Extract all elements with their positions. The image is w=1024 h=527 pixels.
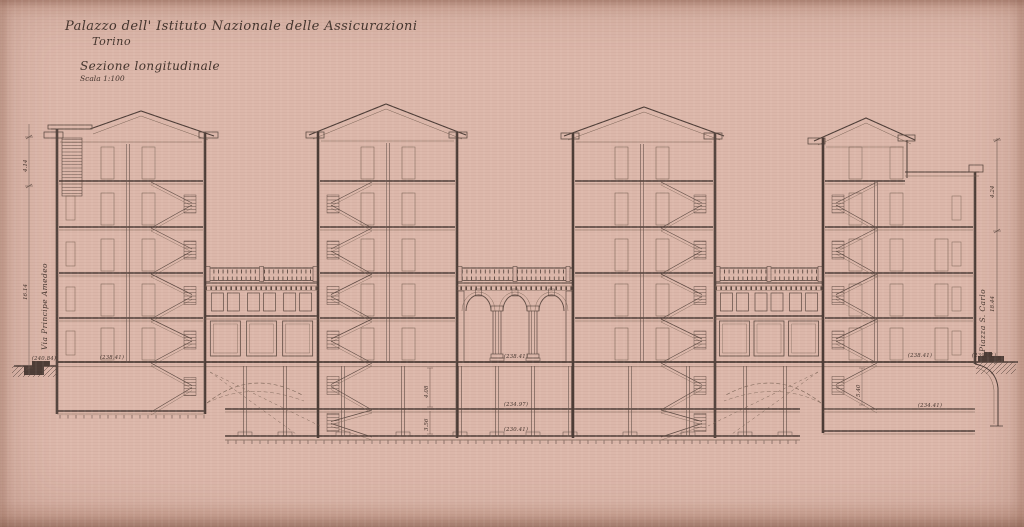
dim-left-upper: 4.14 bbox=[23, 159, 29, 173]
elevation-right-room: (234.41) bbox=[918, 402, 942, 409]
elevation-ground-center: (238.41) bbox=[504, 353, 528, 360]
elevation-basement-low: (230.41) bbox=[504, 426, 528, 433]
street-label-right: Piazza S. Carlo bbox=[978, 289, 987, 353]
elevation-right-wing: (238.41) bbox=[908, 352, 932, 359]
elevation-basement-mid: (234.97) bbox=[504, 401, 528, 408]
elevation-street-right: (239.41) bbox=[972, 352, 996, 359]
annotations: Palazzo dell' Istituto Nazionale delle A… bbox=[23, 19, 996, 433]
dim-right-lower: 18.44 bbox=[990, 296, 996, 312]
dim-cellar-upper: 4.08 bbox=[424, 385, 430, 399]
drawing-sheet: Palazzo dell' Istituto Nazionale delle A… bbox=[0, 0, 1024, 527]
dim-left-lower: 16.14 bbox=[23, 284, 29, 300]
street-label-left: Via Principe Amedeo bbox=[40, 263, 49, 350]
dim-cellar-lower: 3.56 bbox=[424, 418, 430, 431]
drawing-title: Palazzo dell' Istituto Nazionale delle A… bbox=[64, 19, 417, 34]
drawing-city: Torino bbox=[92, 35, 131, 48]
elevation-street-left: (240.84) bbox=[32, 355, 56, 362]
drawing-name: Sezione longitudinale bbox=[80, 59, 220, 73]
elevation-left-tower-base: (238.41) bbox=[100, 354, 124, 361]
section-linework bbox=[12, 104, 1018, 445]
dim-right-cellar: 5.40 bbox=[856, 384, 862, 397]
dim-right-upper: 4.24 bbox=[990, 185, 996, 199]
longitudinal-section-drawing: Palazzo dell' Istituto Nazionale delle A… bbox=[0, 0, 1024, 527]
drawing-scale: Scala 1:100 bbox=[80, 74, 125, 83]
